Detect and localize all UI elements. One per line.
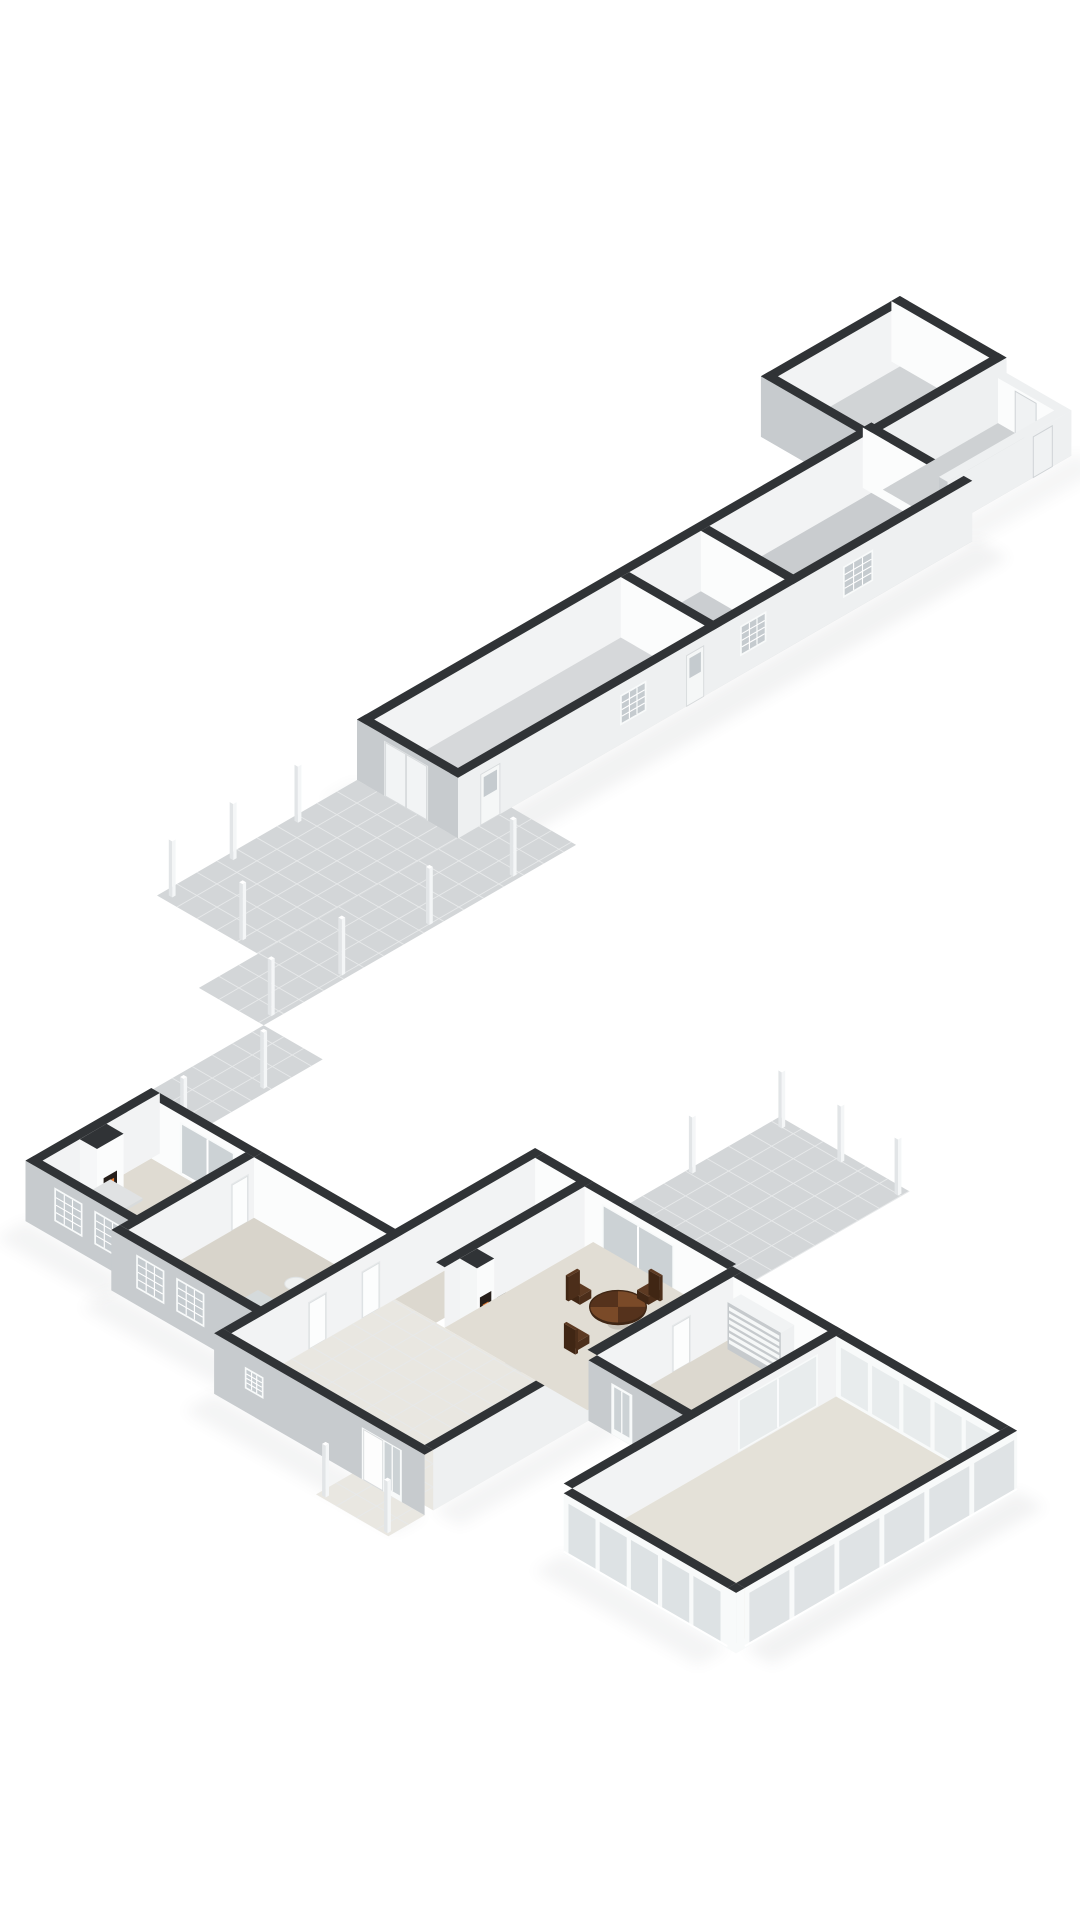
page-background <box>0 0 1080 1920</box>
floorplan-3d-render <box>0 0 1080 1920</box>
floorplan-viewport <box>0 0 1080 1920</box>
